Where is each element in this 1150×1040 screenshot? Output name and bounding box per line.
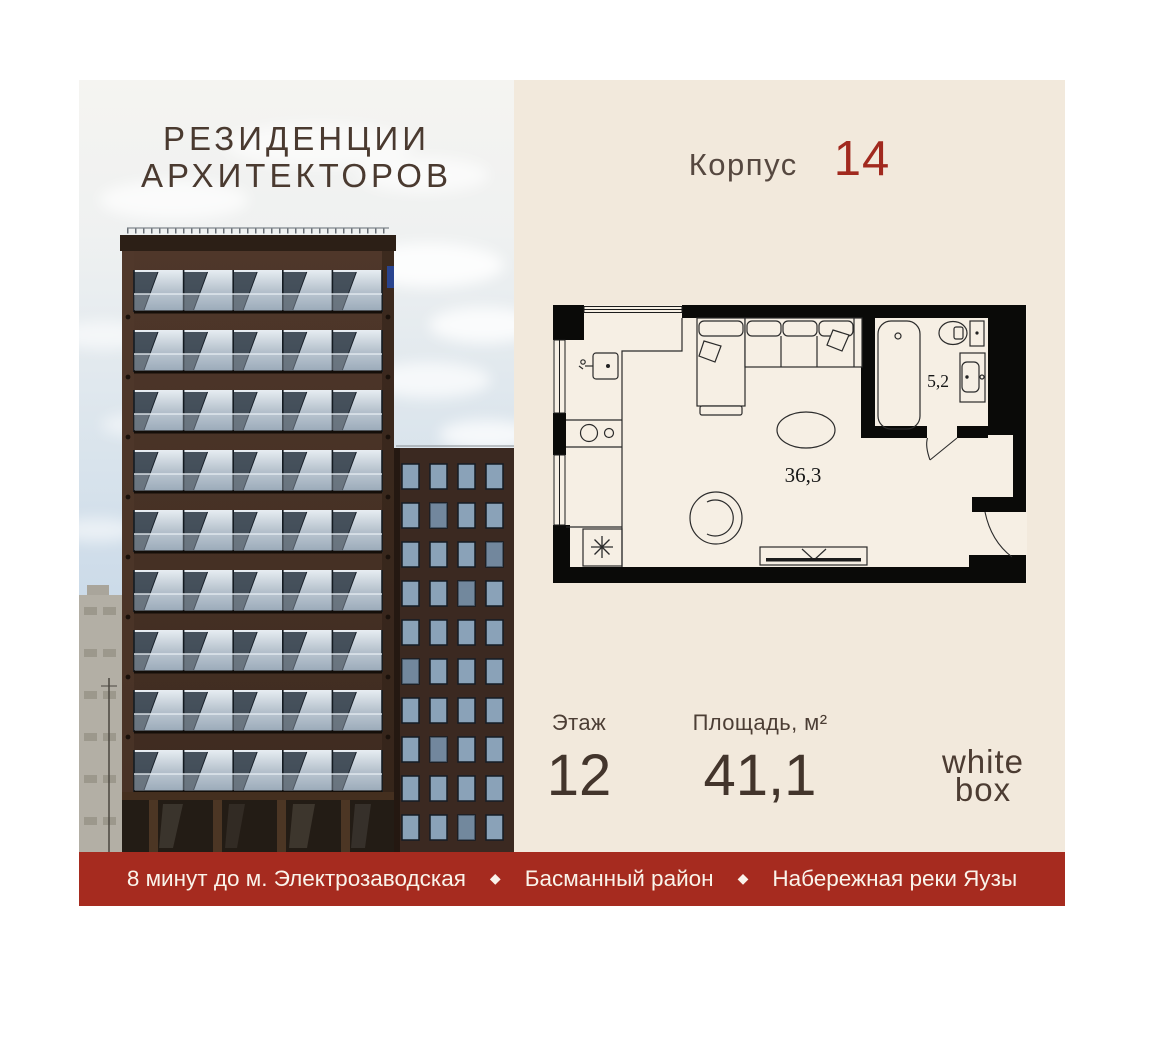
area-value: 41,1 (693, 747, 828, 805)
floor-column: Этаж 12 (547, 710, 612, 805)
floor-plan-art: 36,3 5,2 (553, 305, 1027, 583)
footer-item-embankment: Набережная реки Яузы (772, 866, 1017, 892)
project-title-line1: РЕЗИДЕНЦИИ (79, 120, 514, 157)
main-tower (120, 228, 396, 852)
diamond-separator-icon: ◆ (490, 870, 501, 887)
bath-area-label: 5,2 (927, 371, 949, 391)
footer-item-district: Басманный район (525, 866, 714, 892)
living-area-label: 36,3 (785, 463, 822, 487)
building-photo: РЕЗИДЕНЦИИ АРХИТЕКТОРОВ (79, 80, 514, 852)
area-label: Площадь, м² (693, 710, 828, 736)
ground-floor (122, 792, 394, 852)
area-column: Площадь, м² 41,1 (693, 710, 828, 805)
flyer-page: РЕЗИДЕНЦИИ АРХИТЕКТОРОВ Корпус 14 (0, 0, 1150, 1040)
project-title-line2: АРХИТЕКТОРОВ (79, 157, 514, 194)
project-title: РЕЗИДЕНЦИИ АРХИТЕКТОРОВ (79, 120, 514, 194)
flyer-card: РЕЗИДЕНЦИИ АРХИТЕКТОРОВ Корпус 14 (79, 80, 1065, 906)
building-number-label: Корпус (689, 149, 798, 180)
building-photo-art (79, 80, 514, 852)
building-number-row: Корпус 14 (514, 135, 1065, 184)
distant-grey-building (79, 585, 125, 852)
finish-line2: box (942, 776, 1024, 804)
footer-item-metro: 8 минут до м. Электрозаводская (127, 866, 466, 892)
floor-value: 12 (547, 747, 612, 805)
location-footer-bar: 8 минут до м. Электрозаводская ◆ Басманн… (79, 852, 1065, 906)
diamond-separator-icon: ◆ (738, 870, 749, 887)
floor-plan: 36,3 5,2 (553, 305, 1027, 583)
side-building (394, 446, 514, 852)
building-number-value: 14 (834, 135, 891, 184)
floor-label: Этаж (547, 710, 612, 736)
finish-badge: white box (942, 748, 1024, 804)
info-panel: Корпус 14 (514, 80, 1065, 852)
